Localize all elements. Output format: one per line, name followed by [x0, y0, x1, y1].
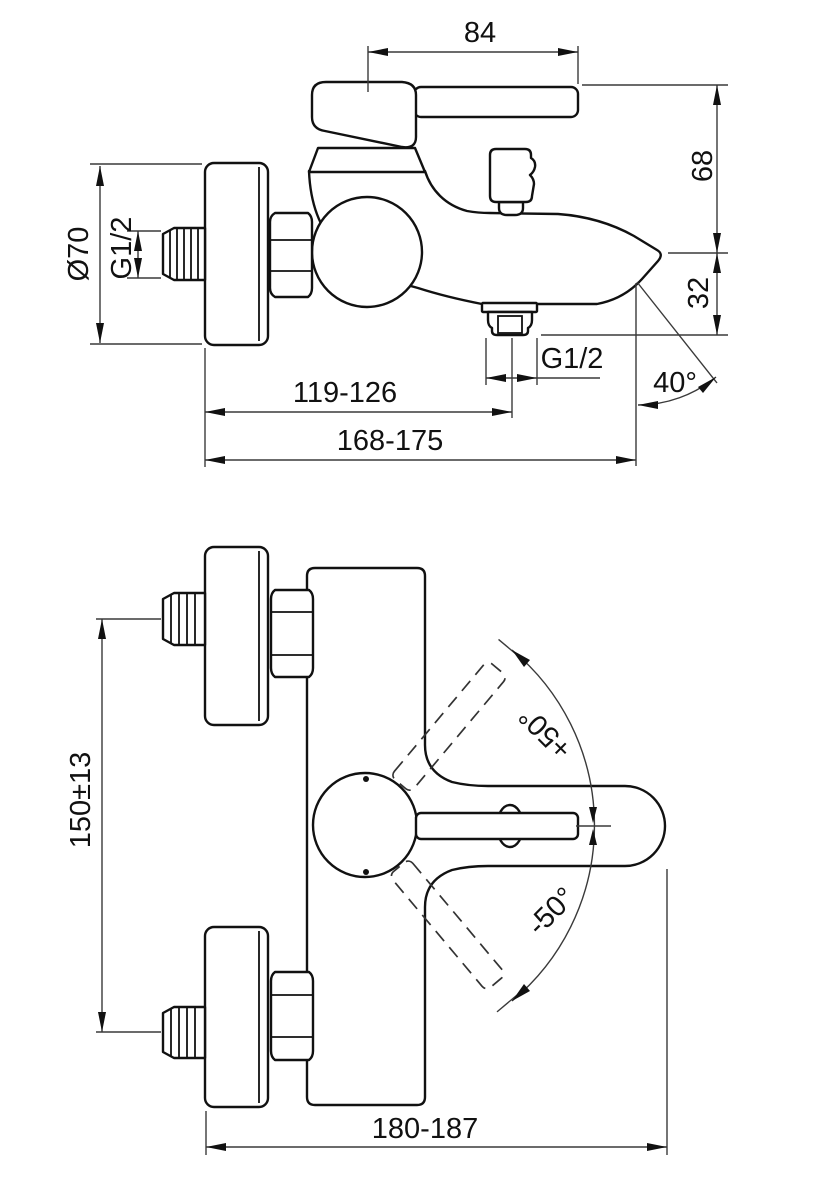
screw-dot-top: [363, 776, 369, 782]
front-handle-lever: [416, 813, 578, 839]
dim-inlet-span: 150±13: [65, 752, 97, 849]
dim-handle-reach: 84: [464, 17, 496, 49]
technical-drawing: 84 68 32 Ø70 G1/2 G1/2 119-126 168-175 4…: [0, 0, 830, 1177]
body-circle: [312, 197, 422, 307]
inlet-nipple: [163, 228, 205, 280]
dim-spray-angle: 40°: [653, 367, 697, 399]
dim-wall-to-outlet: 119-126: [293, 377, 397, 409]
diverter-knob: [490, 149, 535, 215]
front-inlet-bottom: [163, 927, 313, 1107]
cartridge-circle: [313, 773, 417, 877]
neck-collar: [309, 148, 425, 172]
dim-handle-swing-down: -50°: [521, 881, 581, 941]
dim-escutcheon-diameter: Ø70: [63, 227, 95, 282]
shower-outlet: [482, 303, 537, 335]
dim-overall-width: 180-187: [372, 1113, 478, 1145]
dim-upper-height: 68: [687, 150, 719, 182]
dim-inlet-thread: G1/2: [106, 217, 138, 280]
inlet-nut: [270, 213, 312, 297]
side-view: 84 68 32 Ø70 G1/2 G1/2 119-126 168-175 4…: [63, 17, 728, 467]
screw-dot-bottom: [363, 869, 369, 875]
dim-handle-swing-up: +50°: [513, 700, 579, 766]
handle-grip: [312, 82, 416, 147]
handle-lever: [414, 87, 578, 117]
drawing-canvas: 84 68 32 Ø70 G1/2 G1/2 119-126 168-175 4…: [0, 0, 830, 1177]
dim-wall-to-tip: 168-175: [337, 425, 443, 457]
front-view: 150±13 +50° -50° 180-187: [65, 547, 667, 1155]
front-inlet-top: [163, 547, 313, 725]
dim-outlet-thread: G1/2: [541, 343, 604, 375]
escutcheon: [205, 163, 268, 345]
dim-spout-drop: 32: [683, 277, 715, 309]
